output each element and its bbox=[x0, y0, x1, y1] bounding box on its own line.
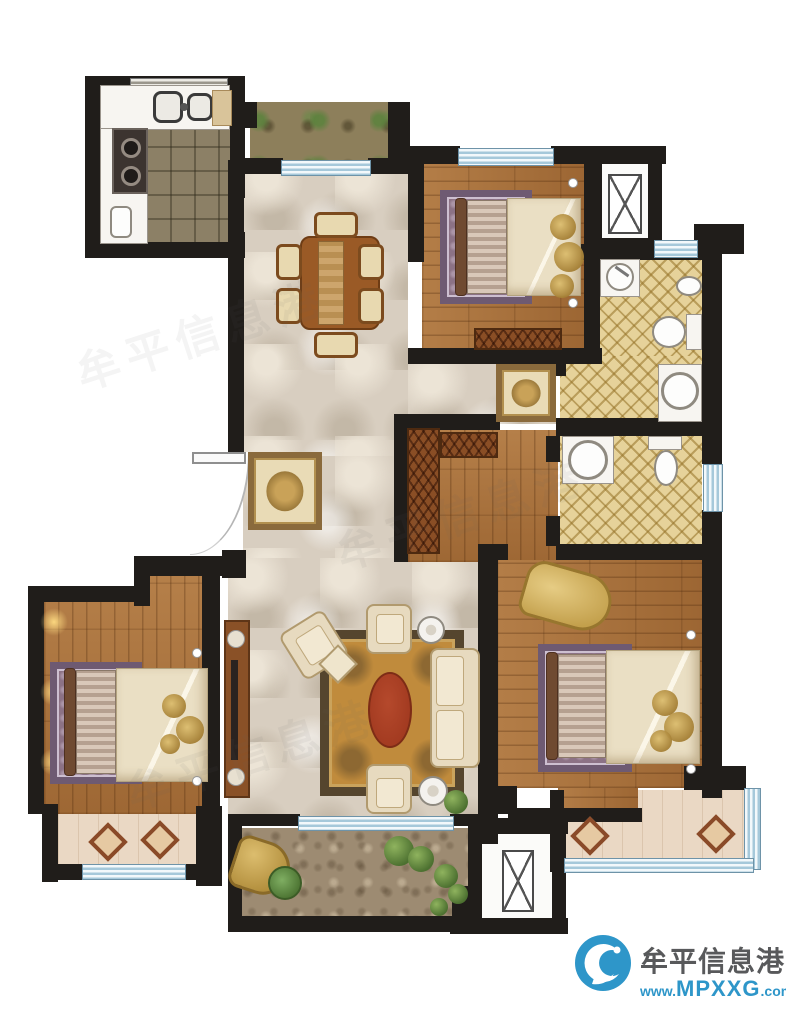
stove-cooktop bbox=[112, 128, 148, 194]
wall-segment bbox=[648, 164, 662, 246]
site-url-prefix: www. bbox=[640, 983, 676, 999]
wall-segment bbox=[228, 814, 300, 826]
site-logo-swoosh-icon bbox=[574, 934, 632, 992]
terrace-plant bbox=[430, 898, 448, 916]
cabinet-ornament bbox=[227, 768, 245, 786]
site-url-domain: MPXXG bbox=[676, 976, 760, 1001]
toilet-bowl bbox=[654, 450, 678, 486]
round-garden-table bbox=[268, 866, 302, 900]
rug-center-oval bbox=[368, 672, 412, 748]
bedroom2-mattress bbox=[76, 670, 116, 774]
rug-medallion bbox=[512, 379, 541, 407]
outside-white-patch bbox=[30, 556, 134, 588]
armchair-seat bbox=[376, 614, 404, 644]
wall-segment bbox=[42, 864, 84, 880]
bed-flowers bbox=[160, 734, 180, 754]
washbasin-bowl bbox=[606, 263, 634, 291]
cabinet-ornament bbox=[227, 630, 245, 648]
bed-flowers bbox=[550, 214, 576, 240]
terrace-plant bbox=[448, 884, 468, 904]
wall-segment bbox=[556, 544, 704, 560]
downlight bbox=[686, 630, 696, 640]
dining-chair bbox=[358, 244, 384, 280]
bed-flowers bbox=[554, 242, 584, 272]
bathroom2-window bbox=[703, 464, 723, 512]
wall-segment bbox=[243, 158, 283, 174]
dining-chair bbox=[276, 288, 302, 324]
master-mattress bbox=[558, 654, 606, 758]
wall-segment bbox=[368, 158, 410, 174]
bed-flowers bbox=[162, 694, 186, 718]
washbasin-bowl bbox=[568, 440, 608, 480]
dining-chair bbox=[276, 244, 302, 280]
wall-segment bbox=[478, 560, 498, 844]
wall-segment bbox=[508, 808, 642, 822]
wall-basin bbox=[676, 276, 702, 296]
site-name: 牟平信息港 bbox=[640, 940, 785, 980]
downlight bbox=[686, 764, 696, 774]
wall-lamp-glow bbox=[40, 608, 68, 636]
wall-segment bbox=[28, 586, 138, 602]
entry-door-leaf bbox=[192, 452, 246, 464]
entry-rug bbox=[248, 452, 322, 530]
wall-segment bbox=[546, 436, 560, 462]
wall-segment bbox=[228, 916, 474, 932]
elevator-shaft-bottom-icon bbox=[502, 850, 534, 912]
terrace-sliding-door bbox=[298, 816, 454, 831]
wall-segment bbox=[450, 918, 568, 934]
wall-segment bbox=[85, 76, 100, 258]
bedroom1-cabinet bbox=[474, 328, 562, 350]
kitchen-small-sink bbox=[110, 206, 132, 238]
elevator-shaft-top-icon bbox=[608, 174, 642, 234]
downlight bbox=[192, 648, 202, 658]
toilet-tank bbox=[648, 436, 682, 450]
master-headboard bbox=[546, 652, 558, 760]
wall-segment bbox=[228, 160, 244, 454]
table-runner bbox=[318, 241, 344, 325]
side-table bbox=[417, 616, 445, 644]
bedroom1-mattress bbox=[467, 200, 507, 294]
bed-flowers bbox=[176, 716, 204, 744]
planter-box bbox=[250, 102, 390, 160]
shaft-side-window bbox=[654, 240, 698, 258]
wardrobe-vertical bbox=[407, 428, 440, 554]
wall-segment bbox=[394, 422, 408, 562]
sofa bbox=[430, 648, 480, 768]
wall-segment bbox=[702, 510, 722, 798]
wall-segment bbox=[408, 348, 602, 364]
planter-end-block bbox=[243, 102, 257, 128]
tv-screen bbox=[231, 660, 238, 760]
wall-segment bbox=[148, 556, 224, 576]
toilet-bowl bbox=[652, 316, 686, 348]
burner-icon bbox=[121, 166, 141, 186]
planter-end-block bbox=[388, 102, 410, 164]
sofa-cushion bbox=[436, 710, 464, 760]
floor-plan: 牟平信息港 牟平信息港 牟平信息港 牟平信息港 www.MPXXG.com bbox=[0, 0, 786, 1010]
sofa-cushion bbox=[436, 656, 464, 706]
round-tub bbox=[661, 372, 699, 410]
wall-segment bbox=[222, 550, 246, 578]
wardrobe-horizontal bbox=[440, 432, 498, 458]
bedroom1-headboard bbox=[455, 198, 467, 296]
wall-segment bbox=[196, 806, 222, 886]
entry-door-swing bbox=[190, 452, 250, 555]
bedroom2-headboard bbox=[64, 668, 76, 776]
balcony-left-window bbox=[82, 864, 186, 880]
toilet-tank bbox=[686, 314, 702, 350]
downlight bbox=[568, 178, 578, 188]
terrace-plant bbox=[408, 846, 434, 872]
wall-segment bbox=[546, 516, 560, 546]
balcony-right-railing-bottom bbox=[564, 858, 754, 873]
site-url-tld: .com bbox=[761, 983, 786, 999]
rug-medallion bbox=[266, 471, 303, 511]
bed-flowers bbox=[650, 730, 672, 752]
wall-segment bbox=[702, 248, 722, 464]
kitchen-tile-floor bbox=[146, 126, 230, 244]
dining-chair bbox=[314, 332, 358, 358]
wall-segment bbox=[588, 146, 666, 164]
wall-segment bbox=[590, 164, 602, 246]
dining-chair bbox=[314, 212, 358, 238]
site-watermark: 牟平信息港 www.MPXXG.com bbox=[560, 928, 786, 1008]
potted-plant bbox=[444, 790, 468, 814]
bed-flowers bbox=[550, 274, 574, 298]
dining-window bbox=[281, 160, 371, 176]
wall-segment bbox=[478, 544, 508, 560]
burner-icon bbox=[121, 138, 141, 158]
cutting-board bbox=[212, 90, 232, 126]
wall-segment bbox=[85, 242, 245, 258]
vestibule-rug bbox=[496, 364, 556, 422]
kitchen-faucet bbox=[180, 103, 188, 111]
armchair bbox=[366, 604, 412, 654]
site-url: www.MPXXG.com bbox=[640, 976, 786, 1002]
wall-segment bbox=[550, 790, 564, 872]
dining-chair bbox=[358, 288, 384, 324]
downlight bbox=[568, 298, 578, 308]
bedroom1-window bbox=[458, 148, 554, 166]
wall-segment bbox=[408, 146, 460, 164]
kitchen-sink-right bbox=[187, 93, 213, 121]
armchair bbox=[366, 764, 412, 814]
downlight bbox=[192, 776, 202, 786]
armchair-seat bbox=[376, 778, 404, 808]
kitchen-sink-left bbox=[153, 91, 183, 123]
